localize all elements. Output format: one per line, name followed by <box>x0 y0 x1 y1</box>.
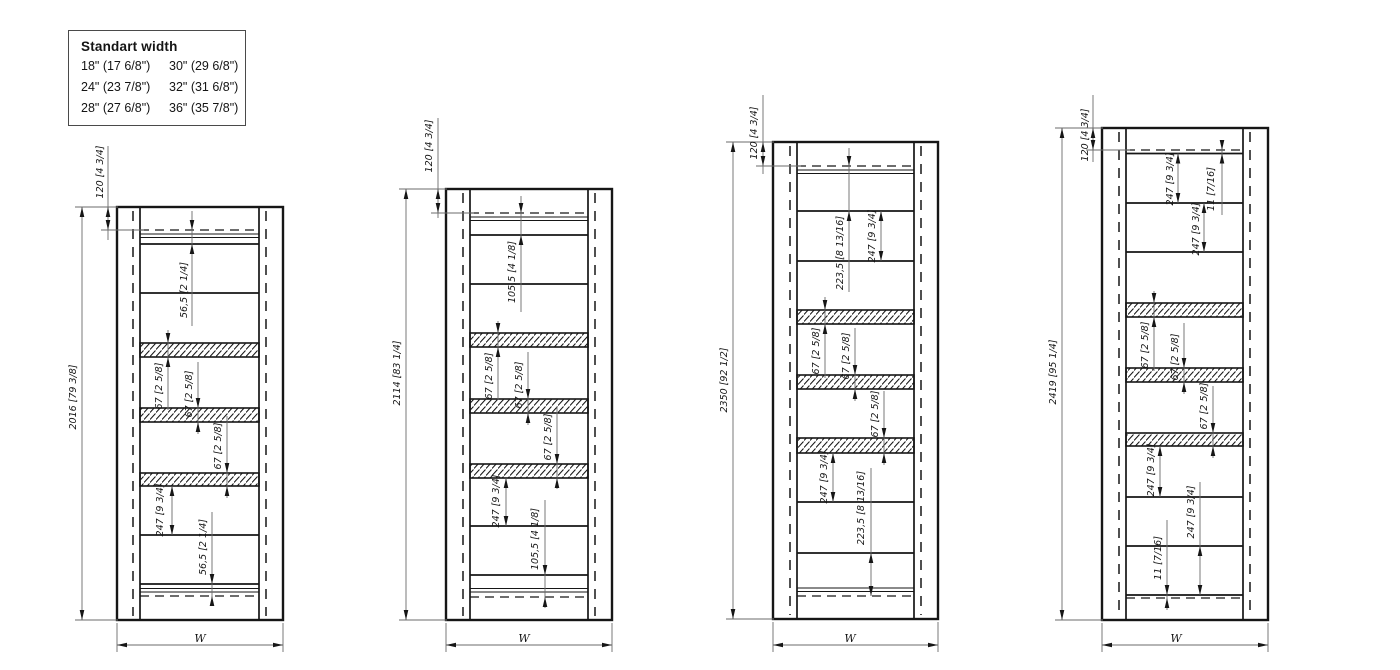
dimension-label: 11 [7/16] <box>1206 167 1217 211</box>
dimension-arrow <box>847 156 852 166</box>
dimension-label: 2114 [83 1/4] <box>392 340 403 405</box>
dimension-arrow <box>504 478 509 488</box>
dimension-arrow <box>1211 423 1216 433</box>
dimension-arrow <box>555 478 560 488</box>
dimension-label: 67 [2 5/8] <box>811 327 822 374</box>
dimension-arrow <box>1176 154 1181 164</box>
dimension-arrow <box>731 609 736 619</box>
drawing-2350: 223,5 [8 13/16]247 [9 3/4]67 [2 5/8]67 [… <box>719 95 938 652</box>
dimension-arrow <box>1198 585 1203 595</box>
hatched-shelf-band <box>470 464 588 478</box>
width-option: 36" (35 7/8") <box>169 101 239 115</box>
dimension-arrow <box>869 586 874 596</box>
dimension-label: 105,5 [4 1/8] <box>530 508 541 570</box>
dimension-label: 67 [2 5/8] <box>870 390 881 437</box>
dimension-arrow <box>1182 382 1187 392</box>
dimension-arrow <box>1198 546 1203 556</box>
dimension-arrow <box>853 389 858 399</box>
dimension-arrow <box>1220 140 1225 150</box>
dimension-arrow <box>602 643 612 648</box>
dimension-label: 120 [4 3/4] <box>95 145 106 198</box>
dimension-arrow <box>1091 128 1096 138</box>
dimension-arrow <box>225 463 230 473</box>
dimension-label: 247 [9 3/4] <box>155 483 166 536</box>
dimension-arrow <box>170 525 175 535</box>
dimension-label: 247 [9 3/4] <box>819 450 830 503</box>
drawing-2419: 247 [9 3/4]247 [9 3/4]11 [7/16]67 [2 5/8… <box>1048 95 1268 652</box>
dimension-label: 2016 [79 3/8] <box>68 364 79 429</box>
dimension-arrow <box>404 189 409 199</box>
dimension-label: W <box>1170 632 1183 645</box>
dimension-arrow <box>106 220 111 230</box>
dimension-arrow <box>879 251 884 261</box>
dimension-label: 2350 [92 1/2] <box>719 347 730 412</box>
dimension-label: 67 [2 5/8] <box>1199 382 1210 429</box>
dimension-arrow <box>869 553 874 563</box>
hatched-shelf-band <box>1126 433 1243 446</box>
dimension-label: 67 [2 5/8] <box>1140 321 1151 368</box>
dimension-arrow <box>831 453 836 463</box>
dimension-arrow <box>436 203 441 213</box>
standard-width-legend: Standart width 18" (17 6/8") 30" (29 6/8… <box>68 30 246 126</box>
dimension-arrow <box>106 207 111 217</box>
dimension-arrow <box>1091 140 1096 150</box>
dimension-arrow <box>1211 446 1216 456</box>
dimension-label: 247 [9 3/4] <box>1191 202 1202 255</box>
dimension-arrow <box>1060 128 1065 138</box>
hatched-shelf-band <box>797 310 914 324</box>
width-option: 28" (27 6/8") <box>81 101 169 115</box>
dimension-arrow <box>882 428 887 438</box>
dimension-arrow <box>170 486 175 496</box>
dimension-label: 56,5 [2 1/4] <box>198 519 209 575</box>
dimension-arrow <box>543 597 548 607</box>
dimension-arrow <box>555 454 560 464</box>
hatched-shelf-band <box>1126 368 1243 382</box>
dimension-label: 67 [2 5/8] <box>841 332 852 379</box>
dimension-label: 11 [7/16] <box>1153 536 1164 580</box>
dimension-arrow <box>1202 242 1207 252</box>
drawing-2016: 56,5 [2 1/4]67 [2 5/8]67 [2 5/8]67 [2 5/… <box>68 145 283 652</box>
dimension-label: 223,5 [8 13/16] <box>835 216 846 290</box>
dimension-arrow <box>1158 446 1163 456</box>
dimension-label: 120 [4 3/4] <box>1080 108 1091 161</box>
dimension-arrow <box>166 333 171 343</box>
dimension-arrow <box>526 389 531 399</box>
legend-size-list: 18" (17 6/8") 30" (29 6/8") 24" (23 7/8"… <box>81 59 239 115</box>
dimension-label: 223,5 [8 13/16] <box>856 471 867 545</box>
drawing-2114: 105,5 [4 1/8]67 [2 5/8]67 [2 5/8]67 [2 5… <box>392 118 612 652</box>
dimension-arrow <box>853 365 858 375</box>
dimension-label: 247 [9 3/4] <box>491 474 502 527</box>
dimension-arrow <box>196 422 201 432</box>
dimension-arrow <box>1176 193 1181 203</box>
dimension-label: 67 [2 5/8] <box>1170 333 1181 380</box>
legend-title: Standart width <box>81 39 239 54</box>
hatched-shelf-band <box>470 399 588 413</box>
dimension-arrow <box>225 486 230 496</box>
dimension-arrow <box>761 156 766 166</box>
dimension-arrow <box>80 207 85 217</box>
dimension-label: 120 [4 3/4] <box>424 119 435 172</box>
width-option: 30" (29 6/8") <box>169 59 239 73</box>
dimension-arrow <box>823 324 828 334</box>
dimension-label: 67 [2 5/8] <box>154 362 165 409</box>
dimension-arrow <box>831 492 836 502</box>
dimension-label: 247 [9 3/4] <box>1165 152 1176 205</box>
dimension-label: W <box>194 632 207 645</box>
dimension-label: 67 [2 5/8] <box>484 352 495 399</box>
dimension-label: 2419 [95 1/4] <box>1048 339 1059 404</box>
dimension-label: 67 [2 5/8] <box>213 422 224 469</box>
dimension-arrow <box>847 211 852 221</box>
dimension-arrow <box>1060 610 1065 620</box>
dimension-arrow <box>504 516 509 526</box>
dimension-label: 247 [9 3/4] <box>1186 485 1197 538</box>
dimension-arrow <box>190 244 195 254</box>
dimension-label: W <box>518 632 531 645</box>
dimension-arrow <box>519 235 524 245</box>
dimension-arrow <box>436 189 441 199</box>
dimension-label: W <box>844 632 857 645</box>
dimension-label: 120 [4 3/4] <box>749 106 760 159</box>
dimension-arrow <box>928 643 938 648</box>
dimension-arrow <box>196 398 201 408</box>
dimension-label: 105,5 [4 1/8] <box>507 241 518 303</box>
dimension-label: 67 [2 5/8] <box>184 370 195 417</box>
dimension-arrow <box>210 596 215 606</box>
dimension-arrow <box>210 574 215 584</box>
dimension-arrow <box>882 453 887 463</box>
dimension-label: 67 [2 5/8] <box>543 413 554 460</box>
hatched-shelf-band <box>797 375 914 389</box>
dimension-arrow <box>1165 585 1170 595</box>
dimension-label: 247 [9 3/4] <box>867 209 878 262</box>
dimension-label: 67 [2 5/8] <box>514 361 525 408</box>
dimension-arrow <box>543 565 548 575</box>
dimension-arrow <box>823 300 828 310</box>
hatched-shelf-band <box>797 438 914 453</box>
width-option: 18" (17 6/8") <box>81 59 169 73</box>
dimension-arrow <box>1182 358 1187 368</box>
dimension-arrow <box>1165 598 1170 608</box>
dimension-arrow <box>761 142 766 152</box>
dimension-arrow <box>446 643 456 648</box>
dimension-arrow <box>879 211 884 221</box>
dimension-arrow <box>190 220 195 230</box>
dimension-arrow <box>1102 643 1112 648</box>
dimension-label: 56,5 [2 1/4] <box>179 262 190 318</box>
dimension-arrow <box>496 347 501 357</box>
hatched-shelf-band <box>140 343 259 357</box>
dimension-arrow <box>273 643 283 648</box>
dimension-arrow <box>404 610 409 620</box>
hatched-shelf-band <box>1126 303 1243 317</box>
width-option: 32" (31 6/8") <box>169 80 239 94</box>
hatched-shelf-band <box>470 333 588 347</box>
dimension-arrow <box>731 142 736 152</box>
dimension-arrow <box>1258 643 1268 648</box>
dimension-label: 247 [9 3/4] <box>1146 443 1157 496</box>
dimension-arrow <box>496 323 501 333</box>
dimension-arrow <box>1158 487 1163 497</box>
dimension-arrow <box>117 643 127 648</box>
dimension-arrow <box>1152 293 1157 303</box>
dimension-arrow <box>166 357 171 367</box>
dimension-arrow <box>1220 154 1225 164</box>
dimension-arrow <box>526 413 531 423</box>
dimension-arrow <box>519 203 524 213</box>
dimension-arrow <box>773 643 783 648</box>
dimension-arrow <box>80 610 85 620</box>
drawing-sheet: 56,5 [2 1/4]67 [2 5/8]67 [2 5/8]67 [2 5/… <box>0 0 1400 670</box>
width-option: 24" (23 7/8") <box>81 80 169 94</box>
dimension-arrow <box>1152 317 1157 327</box>
